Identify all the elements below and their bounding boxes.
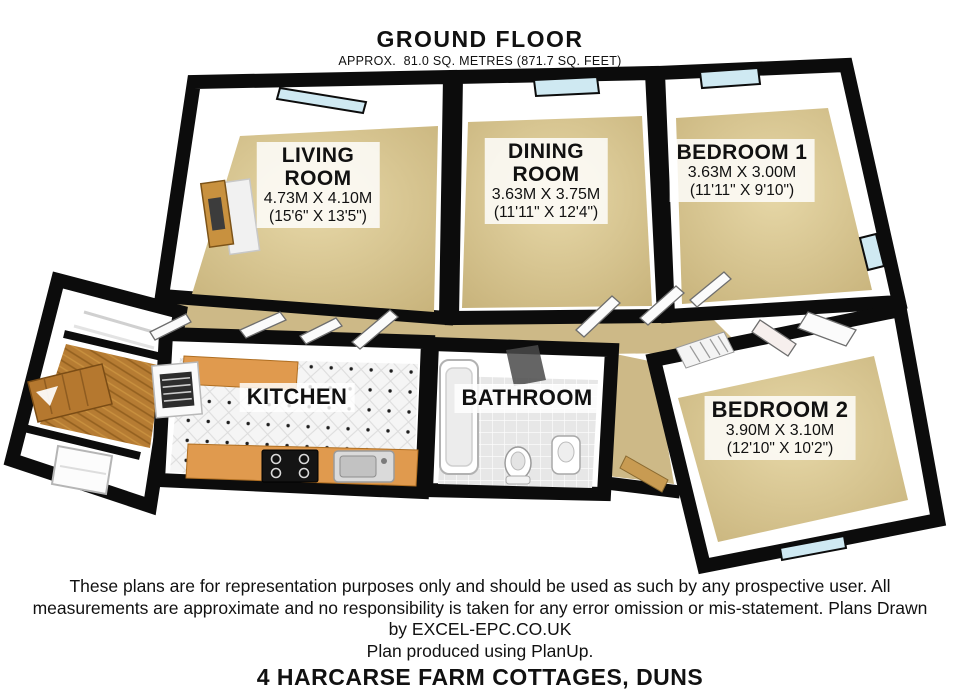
dining-room-window	[534, 77, 599, 96]
disclaimer-line: by EXCEL-EPC.CO.UK	[0, 619, 960, 641]
living-room	[162, 77, 450, 318]
kitchen-sink	[334, 451, 394, 482]
kitchen	[152, 334, 428, 492]
disclaimer-line: These plans are for representation purpo…	[0, 576, 960, 598]
tv-unit	[201, 177, 260, 257]
stove	[262, 450, 318, 482]
kitchen-appliance-vent	[152, 362, 202, 418]
basin	[552, 436, 580, 474]
bathtub	[440, 360, 478, 474]
dining-room-floor	[462, 116, 652, 308]
floor-plan-page: GROUND FLOOR APPROX. 81.0 SQ. METRES (87…	[0, 0, 960, 698]
dining-room	[452, 73, 664, 318]
property-address: 4 HARCARSE FARM COTTAGES, DUNS	[0, 664, 960, 691]
bathroom	[426, 344, 612, 494]
disclaimer-line: measurements are approximate and no resp…	[0, 598, 960, 620]
toilet	[505, 447, 531, 484]
disclaimer: These plans are for representation purpo…	[0, 576, 960, 662]
bedroom-1-window	[700, 68, 760, 88]
bedroom-1	[658, 65, 899, 316]
disclaimer-line: Plan produced using PlanUp.	[0, 641, 960, 663]
